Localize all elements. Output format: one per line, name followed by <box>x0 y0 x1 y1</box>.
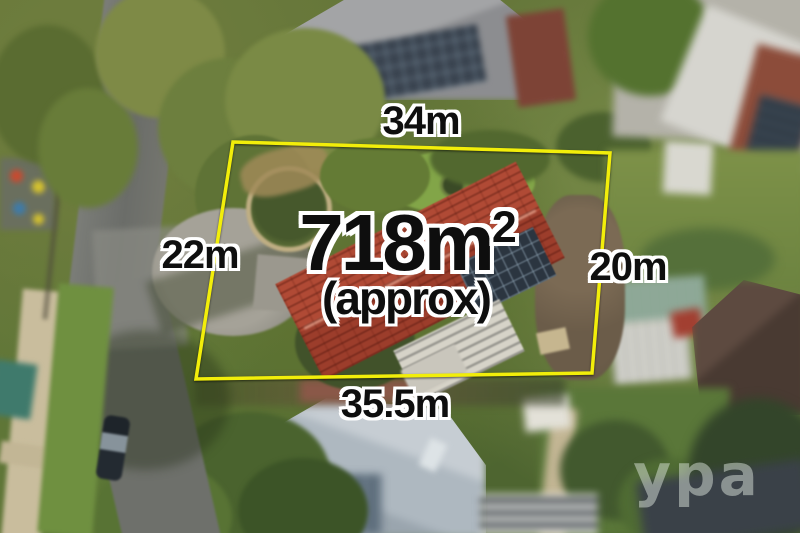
dimension-label-bottom: 35.5m <box>341 384 449 424</box>
dimension-label-right: 20m <box>589 247 666 287</box>
aerial-property-photo: 34m 22m 20m 35.5m 718m2 (approx) ypa <box>0 0 800 533</box>
area-approx-label: (approx) <box>322 275 490 321</box>
dimension-label-left: 22m <box>161 235 238 275</box>
dimension-label-top: 34m <box>382 101 459 141</box>
area-superscript: 2 <box>492 202 517 252</box>
ypa-watermark-logo: ypa <box>633 446 760 504</box>
area-label: 718m2 <box>299 203 517 283</box>
